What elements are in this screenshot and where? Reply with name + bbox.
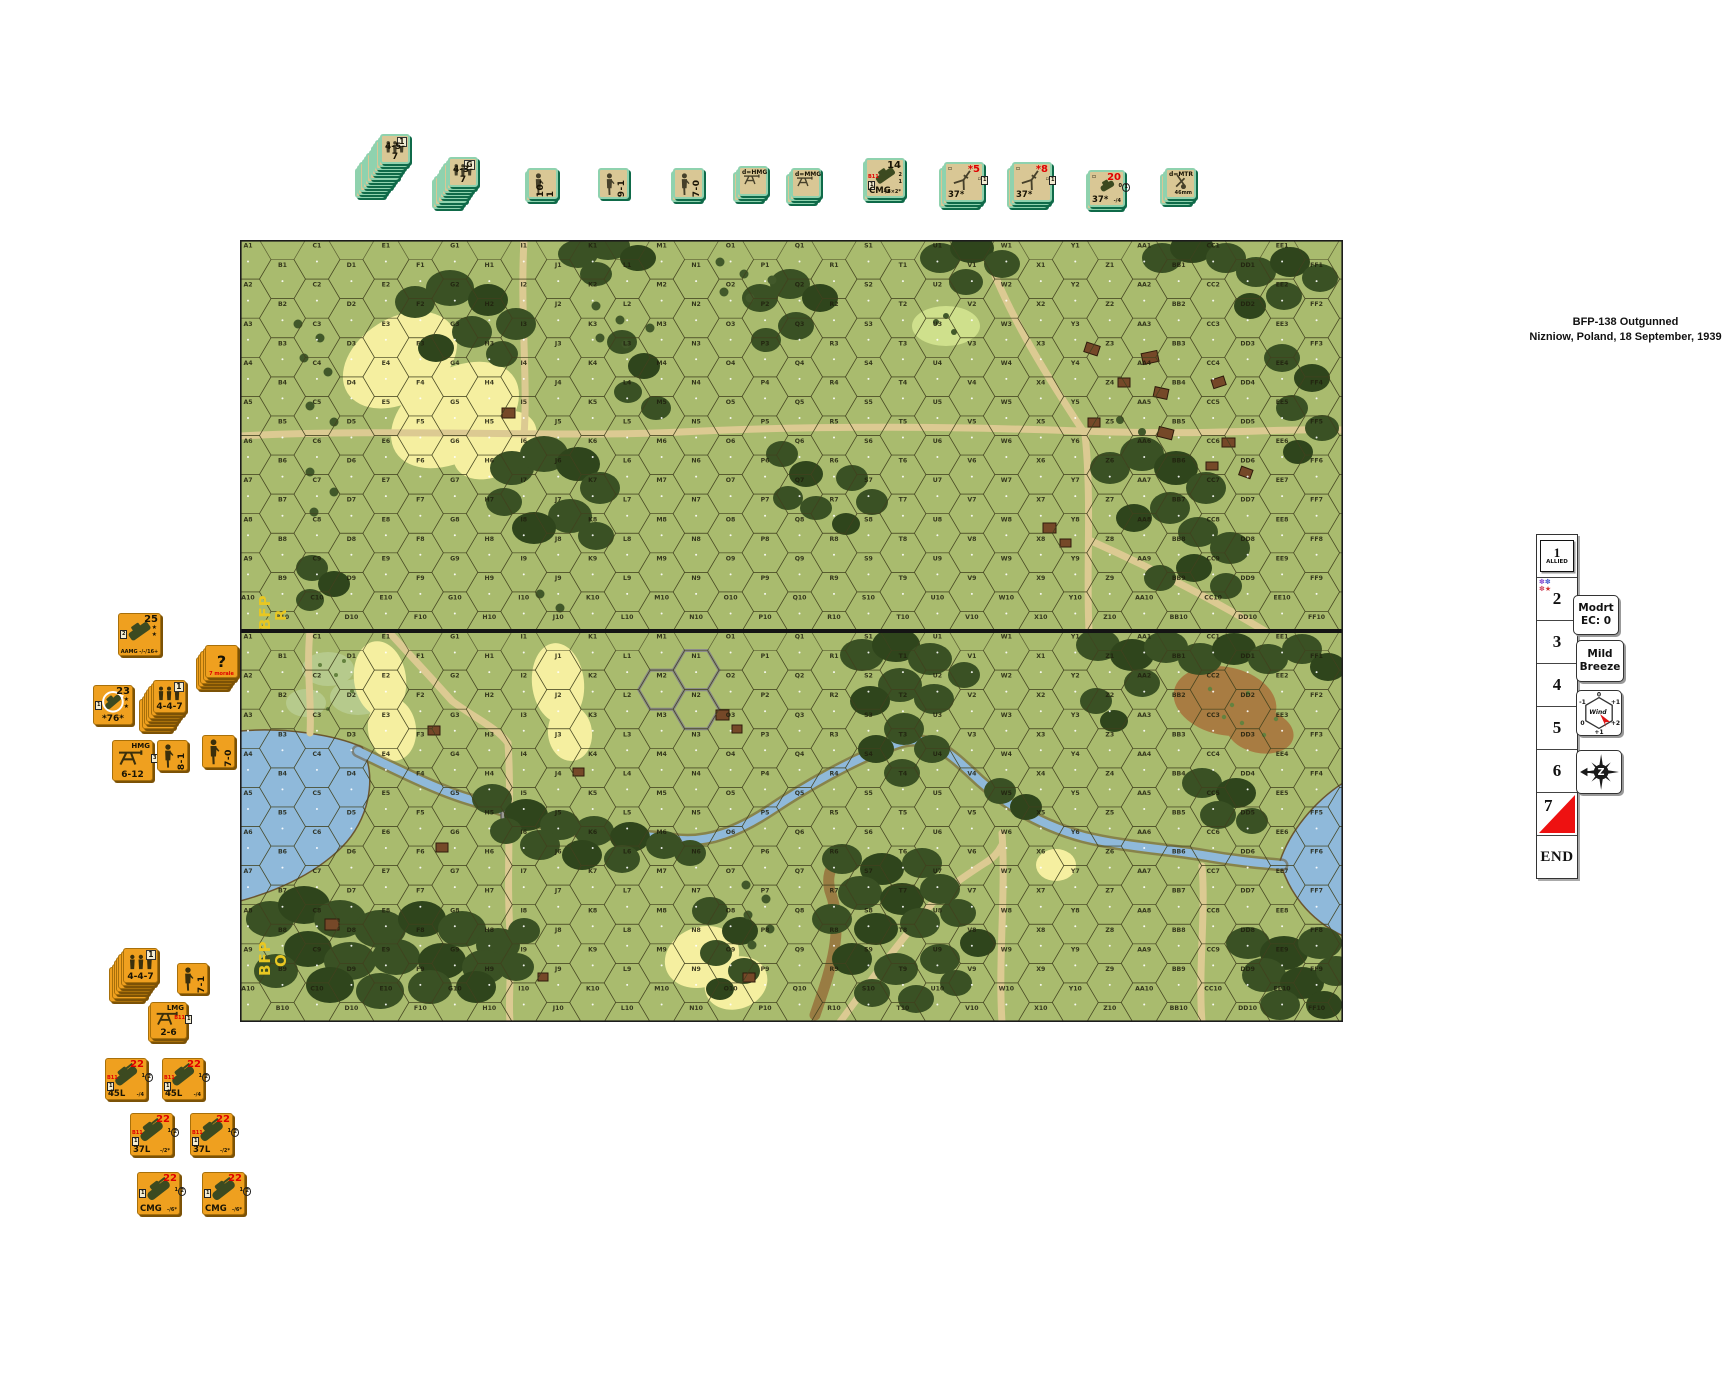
hex-label: B8: [278, 536, 287, 543]
hex-center-dot: [1212, 612, 1214, 614]
hex-label: O2: [726, 282, 736, 289]
hex-center-dot: [695, 593, 697, 595]
turn-number: 2: [1553, 589, 1562, 609]
hex-center-dot: [454, 652, 456, 654]
counter-text: AAMG -/-/16+: [119, 649, 160, 655]
turn-cell-END[interactable]: END: [1537, 836, 1577, 878]
hex-label: D8: [347, 536, 356, 543]
hex-center-dot: [281, 437, 283, 439]
hex-label: W3: [1001, 712, 1012, 719]
hex-center-dot: [1247, 945, 1249, 947]
hex-label: D9: [347, 966, 356, 973]
hex-label: J9: [554, 575, 562, 582]
compass-marker[interactable]: Z: [1576, 750, 1622, 794]
hex-label: I4: [520, 360, 527, 367]
hex-center-dot: [626, 671, 628, 673]
hex-center-dot: [281, 671, 283, 673]
hex-center-dot: [454, 1003, 456, 1005]
hex-label: S4: [864, 751, 873, 758]
hex-center-dot: [350, 788, 352, 790]
hex-center-dot: [1178, 358, 1180, 360]
hex-label: V8: [967, 536, 976, 543]
hex-center-dot: [419, 906, 421, 908]
counter-face-leader-9-1[interactable]: 9-1: [598, 168, 629, 199]
hex-label: CC5: [1206, 790, 1219, 797]
counter-face-veh-37-20[interactable]: 20▫1037*-/4: [1088, 170, 1125, 207]
counter-text: d=MMG: [795, 171, 821, 178]
hex-label: AA4: [1137, 360, 1152, 367]
hex-center-dot: [730, 808, 732, 810]
hex-center-dot: [316, 495, 318, 497]
breeze-marker[interactable]: MildBreeze: [1576, 640, 1624, 682]
hex-label: M9: [656, 946, 666, 953]
hex-center-dot: [557, 710, 559, 712]
counter-face-tank-cmg-a[interactable]: 22121CMG-/6*: [137, 1172, 180, 1215]
hex-label: Q9: [795, 946, 805, 953]
hex-center-dot: [764, 319, 766, 321]
hex-label: D2: [347, 692, 356, 699]
counter-text: B111: [132, 1130, 143, 1137]
hex-label: DD10: [1238, 1005, 1258, 1012]
hex-center-dot: [523, 261, 525, 263]
hex-center-dot: [695, 867, 697, 869]
hex-center-dot: [488, 476, 490, 478]
hex-center-dot: [592, 1003, 594, 1005]
hex-center-dot: [281, 319, 283, 321]
hex-label: D1: [347, 653, 356, 660]
hex-center-dot: [764, 906, 766, 908]
hex-center-dot: [833, 749, 835, 751]
counter-face-tank-45l-a[interactable]: 22B1112145L-/4: [105, 1058, 147, 1100]
hex-center-dot: [523, 1003, 525, 1005]
hex-label: F6: [416, 849, 425, 856]
counter-face-leader-7-0[interactable]: 7-0: [673, 168, 704, 199]
hex-label: DD9: [1240, 575, 1255, 582]
hex-label: H8: [485, 927, 494, 934]
hex-center-dot: [661, 1003, 663, 1005]
hex-label: N4: [691, 770, 701, 777]
hex-center-dot: [1109, 319, 1111, 321]
hex-center-dot: [350, 358, 352, 360]
hex-label: H1: [485, 262, 494, 269]
hex-label: V4: [967, 770, 977, 777]
hex-label: O1: [726, 243, 736, 250]
hex-label: S8: [864, 907, 873, 914]
hex-center-dot: [1074, 730, 1076, 732]
hex-label: N6: [691, 458, 700, 465]
hex-label: F1: [416, 653, 425, 660]
hex-label: W8: [1001, 907, 1012, 914]
counter-face-gun-37-8[interactable]: *8▫1▫37*: [1012, 162, 1052, 202]
hex-label: AA10: [1135, 985, 1154, 992]
hex-label: BB7: [1172, 497, 1186, 504]
hex-label: J2: [554, 692, 562, 699]
turn-cell-1[interactable]: 1ALLIED: [1537, 535, 1577, 578]
turn-cell-6[interactable]: 6: [1537, 750, 1577, 793]
counter-face-sw-hmg[interactable]: HMG36-12: [112, 740, 153, 781]
hex-label: Z1: [1105, 262, 1114, 269]
hex-label: AA5: [1137, 399, 1151, 406]
turn-cell-5[interactable]: 5: [1537, 707, 1577, 750]
hex-center-dot: [1143, 300, 1145, 302]
hex-center-dot: [1281, 612, 1283, 614]
hex-label: EE4: [1276, 360, 1289, 367]
hex-center-dot: [316, 652, 318, 654]
hex-label: Q1: [795, 243, 805, 250]
hex-center-dot: [764, 554, 766, 556]
turn-cell-3[interactable]: 3: [1537, 621, 1577, 664]
hex-label: F2: [416, 692, 425, 699]
hex-label: I2: [520, 282, 527, 289]
hex-center-dot: [1212, 730, 1214, 732]
hex-center-dot: [936, 612, 938, 614]
hex-label: Q8: [795, 907, 805, 914]
hex-center-dot: [592, 417, 594, 419]
counter-text: 21: [168, 1128, 171, 1135]
hex-center-dot: [350, 906, 352, 908]
hex-center-dot: [730, 261, 732, 263]
hex-label: I10: [518, 985, 530, 992]
hex-center-dot: [1074, 261, 1076, 263]
hex-label: U9: [933, 555, 942, 562]
hex-label: P7: [761, 497, 770, 504]
hex-label: R10: [827, 614, 841, 621]
hex-center-dot: [730, 691, 732, 693]
hex-center-dot: [971, 671, 973, 673]
hex-center-dot: [833, 397, 835, 399]
hex-center-dot: [281, 788, 283, 790]
hex-center-dot: [1109, 515, 1111, 517]
wind-rose-icon: -10+10+1+2Wind: [1577, 691, 1621, 735]
hex-center-dot: [799, 456, 801, 458]
hex-label: V2: [967, 692, 976, 699]
counter-face-tank-45l-b[interactable]: 22B1112145L-/4: [162, 1058, 204, 1100]
hex-label: EE3: [1276, 712, 1289, 719]
hex-center-dot: [867, 886, 869, 888]
hex-center-dot: [592, 300, 594, 302]
hex-label: J7: [554, 888, 562, 895]
counter-text: *5: [968, 164, 980, 175]
hex-center-dot: [557, 984, 559, 986]
hex-center-dot: [523, 417, 525, 419]
counter-face-leader-7-0-r[interactable]: 7-0: [202, 735, 235, 768]
hex-center-dot: [592, 495, 594, 497]
hex-label: D9: [347, 575, 356, 582]
hex-label: Q3: [795, 712, 805, 719]
counter-face-veh-76-23[interactable]: 23★ ★1*76*: [93, 685, 133, 725]
hex-center-dot: [730, 925, 732, 927]
hex-center-dot: [523, 456, 525, 458]
hex-label: V2: [967, 301, 976, 308]
hex-center-dot: [454, 417, 456, 419]
hex-label: X1: [1036, 653, 1045, 660]
counter-face-concealment-stack[interactable]: ?7 morale: [205, 645, 238, 678]
hex-label: BB7: [1172, 888, 1186, 895]
hex-center-dot: [902, 710, 904, 712]
hex-center-dot: [833, 593, 835, 595]
counter-text: *76*: [94, 714, 132, 724]
hex-label: P8: [761, 536, 770, 543]
hex-center-dot: [592, 730, 594, 732]
hex-label: FF10: [1308, 614, 1326, 621]
hex-label: I9: [520, 555, 527, 562]
allied-turn-marker[interactable]: 1ALLIED: [1540, 540, 1574, 572]
hex-label: B2: [278, 301, 287, 308]
hex-center-dot: [1109, 397, 1111, 399]
counter-face-leader-10-1[interactable]: 10-1: [527, 168, 558, 199]
hex-label: K9: [588, 946, 597, 953]
hex-center-dot: [281, 828, 283, 830]
hex-label: H10: [482, 1005, 496, 1012]
hex-label: CC3: [1206, 712, 1219, 719]
turn-number: 4: [1553, 675, 1562, 695]
hex-center-dot: [971, 788, 973, 790]
wind-rose-marker[interactable]: -10+10+1+2Wind: [1576, 690, 1622, 736]
counter-text: -/4: [1114, 198, 1121, 204]
counter-face-sw-lmg[interactable]: LMG1B112-6: [150, 1002, 187, 1039]
hex-center-dot: [385, 808, 387, 810]
hex-label: C5: [313, 790, 322, 797]
hex-label: B1: [278, 262, 287, 269]
turn-cell-2[interactable]: ✽✽✽★2: [1537, 578, 1577, 621]
hex-label: Y4: [1070, 751, 1080, 758]
hex-center-dot: [419, 828, 421, 830]
counter-face-sw-dhmg[interactable]: d=HMG: [738, 166, 768, 196]
hex-center-dot: [385, 769, 387, 771]
ec-marker[interactable]: ModrtEC: 0: [1573, 595, 1619, 635]
hex-label: B8: [278, 927, 287, 934]
hex-label: F1: [416, 262, 425, 269]
hex-center-dot: [488, 828, 490, 830]
counter-face-stack-4-4-7-b[interactable]: 14-4-7: [123, 948, 158, 983]
hex-label: B3: [278, 731, 287, 738]
counter-face-stack-4-4-7-a[interactable]: 14-4-7: [153, 680, 186, 713]
hex-label: A3: [243, 712, 252, 719]
hex-center-dot: [799, 964, 801, 966]
hex-center-dot: [1281, 261, 1283, 263]
hex-label: O5: [726, 790, 736, 797]
hex-label: S5: [864, 399, 873, 406]
hex-center-dot: [385, 1003, 387, 1005]
hex-label: I2: [520, 673, 527, 680]
hex-label: S8: [864, 516, 873, 523]
counter-face-stack-4-5-7[interactable]: 14-5-7: [380, 134, 410, 164]
svg-text:0: 0: [1580, 720, 1584, 727]
hex-label: DD4: [1240, 770, 1255, 777]
counter-face-tank-37l-a[interactable]: 22B1112137L-/2*: [130, 1113, 173, 1156]
hex-label: P10: [758, 1005, 772, 1012]
counter-face-leader-7-1[interactable]: 7-1: [177, 963, 208, 994]
hex-label: P6: [761, 458, 770, 465]
hex-center-dot: [1109, 671, 1111, 673]
hex-center-dot: [1005, 378, 1007, 380]
hex-label: T7: [899, 888, 908, 895]
hex-center-dot: [1281, 300, 1283, 302]
hex-label: G3: [450, 712, 459, 719]
hex-center-dot: [902, 397, 904, 399]
hex-label: J8: [554, 927, 562, 934]
hex-label: DD2: [1240, 692, 1255, 699]
hex-label: W10: [999, 985, 1015, 992]
hex-center-dot: [1074, 456, 1076, 458]
hex-center-dot: [661, 612, 663, 614]
counter-face-veh-cmg-14[interactable]: 14B11121CMG-/6×2*: [865, 158, 905, 198]
hex-center-dot: [730, 1003, 732, 1005]
hex-center-dot: [557, 319, 559, 321]
hex-label: C10: [310, 985, 324, 992]
hex-center-dot: [764, 828, 766, 830]
hex-label: EE5: [1276, 790, 1289, 797]
leader-icon: [205, 739, 222, 765]
game-map[interactable]: A1A2A3A4A5A6A7A8A9A10B1B2B3B4B5B6B7B8B9B…: [240, 240, 1343, 1022]
hex-center-dot: [592, 573, 594, 575]
hex-center-dot: [936, 378, 938, 380]
counter-face-sw-dmmg[interactable]: d=MMG: [791, 168, 821, 198]
hex-center-dot: [419, 945, 421, 947]
hex-center-dot: [936, 573, 938, 575]
hex-label: F8: [416, 927, 425, 934]
hex-center-dot: [454, 925, 456, 927]
hex-center-dot: [1040, 319, 1042, 321]
counter-face-gun-37-5[interactable]: *5▫1▫37*: [944, 162, 984, 202]
hex-center-dot: [867, 339, 869, 341]
hex-center-dot: [419, 671, 421, 673]
hex-label: G10: [448, 594, 462, 601]
hex-label: D3: [347, 731, 356, 738]
counter-text: d=MTR: [1169, 171, 1193, 178]
hex-label: AA1: [1137, 243, 1151, 250]
hex-label: H2: [485, 692, 494, 699]
hex-label: R10: [827, 1005, 841, 1012]
hex-label: G4: [450, 360, 460, 367]
hex-center-dot: [626, 554, 628, 556]
marker-line-2: EC: 0: [1581, 615, 1611, 628]
hex-center-dot: [867, 300, 869, 302]
hex-center-dot: [1074, 339, 1076, 341]
hex-label: G6: [450, 438, 459, 445]
hex-center-dot: [488, 867, 490, 869]
hex-label: K7: [588, 477, 597, 484]
hex-label: M6: [656, 438, 666, 445]
hex-label: T3: [899, 340, 908, 347]
hex-center-dot: [523, 847, 525, 849]
map-svg[interactable]: A1A2A3A4A5A6A7A8A9A10B1B2B3B4B5B6B7B8B9B…: [240, 240, 1343, 1022]
hex-label: R4: [829, 770, 839, 777]
turn-cell-7[interactable]: 7: [1537, 793, 1577, 836]
counter-text: 37L: [193, 1145, 210, 1155]
hex-label: F4: [416, 770, 425, 777]
counter-face-stack-4-3-7[interactable]: G4-3-7: [448, 157, 478, 187]
hex-center-dot: [626, 828, 628, 830]
hex-label: T5: [899, 419, 908, 426]
hex-center-dot: [592, 261, 594, 263]
turn-cell-4[interactable]: 4: [1537, 664, 1577, 707]
hex-label: C10: [310, 594, 324, 601]
counter-text: 8-1: [177, 744, 187, 770]
hex-label: E4: [382, 751, 391, 758]
hex-label: G7: [450, 477, 459, 484]
hex-label: V5: [967, 810, 976, 817]
hex-center-dot: [695, 437, 697, 439]
hex-label: EE2: [1276, 673, 1289, 680]
hex-center-dot: [1143, 456, 1145, 458]
hex-center-dot: [695, 515, 697, 517]
counter-face-tank-cmg-b[interactable]: 22121CMG-/6*: [202, 1172, 245, 1215]
hex-label: Q5: [795, 399, 805, 406]
hex-center-dot: [695, 945, 697, 947]
hex-center-dot: [936, 456, 938, 458]
turn-number: END: [1540, 849, 1573, 866]
hex-center-dot: [1212, 886, 1214, 888]
hex-label: K6: [588, 438, 597, 445]
hex-center-dot: [936, 886, 938, 888]
hex-center-dot: [454, 769, 456, 771]
hex-label: Y3: [1070, 712, 1080, 719]
hex-label: L8: [623, 536, 631, 543]
counter-face-sw-dmtr[interactable]: d=MTR46mm: [1165, 168, 1196, 199]
hex-center-dot: [454, 691, 456, 693]
counter-face-tank-37l-b[interactable]: 22B1112137L-/2*: [190, 1113, 233, 1156]
hex-center-dot: [1178, 319, 1180, 321]
hex-label: N5: [691, 810, 700, 817]
hex-center-dot: [523, 925, 525, 927]
hex-label: B4: [278, 379, 288, 386]
vasl-game-window: A1A2A3A4A5A6A7A8A9A10B1B2B3B4B5B6B7B8B9B…: [0, 0, 1733, 1393]
turn-track[interactable]: 1ALLIED✽✽✽★234567END: [1536, 534, 1578, 879]
hex-label: X8: [1036, 927, 1045, 934]
hex-label: I6: [520, 438, 527, 445]
hex-label: F9: [416, 966, 425, 973]
hex-label: B6: [278, 458, 287, 465]
hex-center-dot: [730, 964, 732, 966]
hex-center-dot: [1212, 652, 1214, 654]
hex-label: V3: [967, 731, 976, 738]
hex-center-dot: [1074, 691, 1076, 693]
hex-center-dot: [1005, 769, 1007, 771]
hex-label: V1: [967, 653, 976, 660]
hex-label: E6: [382, 438, 391, 445]
hex-label: BB2: [1172, 692, 1186, 699]
hex-label: L4: [623, 770, 632, 777]
turn-number: 7: [1544, 796, 1553, 816]
hex-label: V1: [967, 262, 976, 269]
counter-face-veh-aamg-25[interactable]: 25★ ★2AAMG -/-/16+: [118, 613, 161, 656]
counter-text: d=HMG: [742, 169, 767, 176]
hex-center-dot: [316, 1003, 318, 1005]
hex-center-dot: [1040, 358, 1042, 360]
hex-center-dot: [1212, 456, 1214, 458]
hex-label: F6: [416, 458, 425, 465]
scenario-id-title: BFP-138 Outgunned: [1518, 315, 1733, 330]
hex-center-dot: [1247, 906, 1249, 908]
hex-center-dot: [592, 691, 594, 693]
hex-label: F5: [416, 419, 425, 426]
hex-center-dot: [1005, 495, 1007, 497]
counter-text: -/6*: [232, 1207, 242, 1213]
hex-center-dot: [971, 867, 973, 869]
counter-text: 22: [216, 1114, 230, 1125]
hex-label: FF3: [1310, 731, 1323, 738]
hex-center-dot: [350, 710, 352, 712]
counter-face-leader-8-1[interactable]: 8-1: [157, 740, 188, 771]
hex-label: F2: [416, 301, 425, 308]
hex-center-dot: [385, 964, 387, 966]
hex-center-dot: [557, 671, 559, 673]
hex-center-dot: [281, 476, 283, 478]
hex-center-dot: [1281, 495, 1283, 497]
hex-label: AA2: [1137, 282, 1151, 289]
counter-text: 1▫: [978, 176, 981, 183]
